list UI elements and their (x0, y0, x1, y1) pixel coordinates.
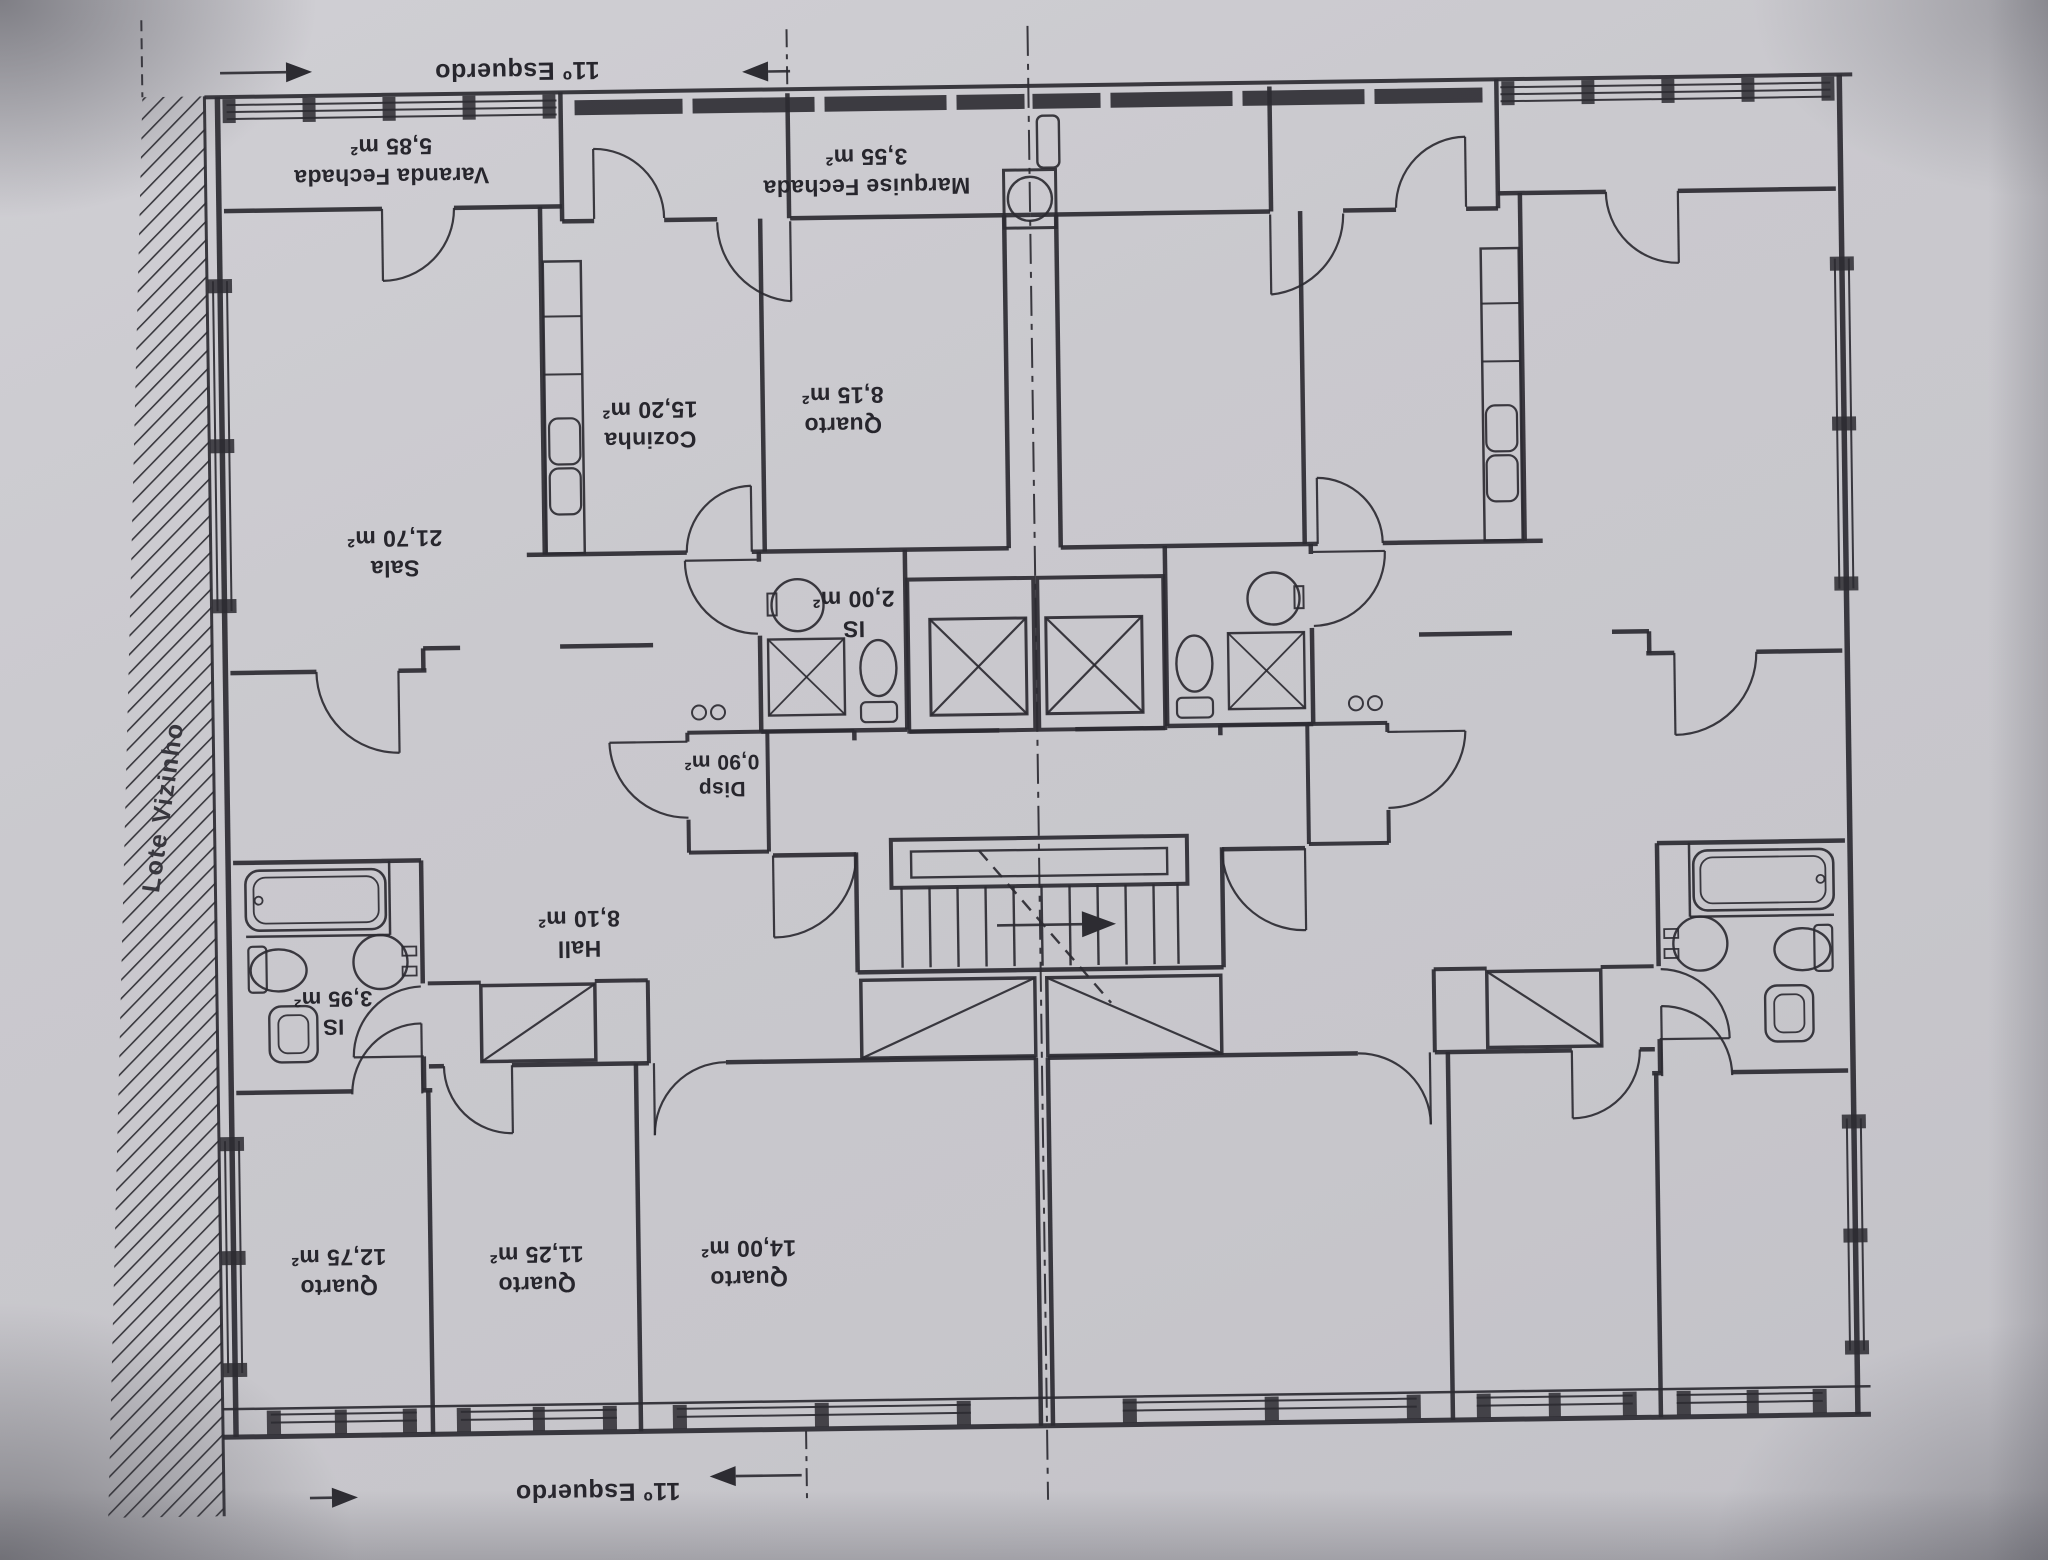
duct-shaft (861, 978, 1036, 1058)
entry-arrow-bottom-left (332, 1487, 358, 1507)
kitchen-counter (543, 261, 585, 554)
svg-text:5,85 m²: 5,85 m² (350, 133, 432, 160)
svg-text:15,20 m²: 15,20 m² (602, 397, 698, 424)
svg-text:8,15 m²: 8,15 m² (801, 382, 883, 409)
svg-text:3,55 m²: 3,55 m² (825, 144, 907, 171)
labels: 11º Esquerdo 11º Esquerdo Lote Vizinho V… (126, 51, 989, 1513)
water-heater (1003, 115, 1061, 228)
entry-arrow-bottom-right (710, 1466, 736, 1486)
svg-text:Marquise Fechada: Marquise Fechada (763, 173, 970, 202)
svg-text:12,75 m²: 12,75 m² (291, 1244, 387, 1271)
entry-arrow-top-left (286, 62, 312, 82)
svg-text:Cozinha: Cozinha (604, 427, 697, 454)
apartment-right-half (1028, 74, 1871, 1425)
wardrobe (481, 984, 596, 1062)
room-label-disp: Disp 0,90 m² (684, 750, 760, 801)
svg-text:Quarto: Quarto (710, 1265, 788, 1292)
svg-text:3,95 m²: 3,95 m² (294, 986, 373, 1012)
svg-text:Disp: Disp (698, 777, 745, 801)
entry-arrow-top-right (742, 62, 768, 82)
room-label-hall: Hall 8,10 m² (538, 906, 621, 963)
unit-label-top: 11º Esquerdo (434, 56, 599, 86)
room-label-quarto-pequeno: Quarto 8,15 m² (801, 382, 884, 439)
svg-text:14,00 m²: 14,00 m² (701, 1235, 797, 1262)
svg-text:8,10 m²: 8,10 m² (538, 906, 620, 933)
door-stops (692, 705, 725, 719)
svg-text:IS: IS (842, 616, 865, 642)
svg-text:IS: IS (322, 1015, 344, 1040)
svg-text:Quarto: Quarto (498, 1271, 576, 1298)
svg-text:0,90 m²: 0,90 m² (684, 750, 760, 774)
svg-text:Quarto: Quarto (300, 1274, 378, 1301)
room-label-quarto-3: Quarto 14,00 m² (701, 1235, 797, 1292)
scanned-floor-plan: 11º Esquerdo 11º Esquerdo Lote Vizinho V… (0, 0, 2048, 1560)
windows (205, 88, 1043, 1435)
svg-text:21,70 m²: 21,70 m² (347, 525, 443, 552)
elevator-shaft (907, 578, 1035, 732)
room-label-varanda: Varanda Fechada 5,85 m² (293, 132, 489, 191)
room-label-is-servico: IS 2,00 m² (812, 586, 895, 643)
stair-direction-line (997, 924, 1082, 925)
room-label-quarto-1: Quarto 12,75 m² (291, 1244, 387, 1301)
svg-text:11,25 m²: 11,25 m² (489, 1241, 583, 1268)
svg-text:Varanda Fechada: Varanda Fechada (294, 162, 490, 191)
unit-label-bottom: 11º Esquerdo (515, 1477, 680, 1507)
apartment-left-half (204, 86, 1047, 1437)
svg-text:Hall: Hall (557, 936, 601, 963)
walls (204, 86, 1047, 1437)
room-label-quarto-2: Quarto 11,25 m² (489, 1241, 584, 1298)
room-label-cozinha: Cozinha 15,20 m² (602, 397, 698, 454)
svg-text:Quarto: Quarto (804, 412, 882, 439)
svg-text:Sala: Sala (370, 555, 419, 582)
room-label-marquise: Marquise Fechada 3,55 m² (763, 143, 971, 202)
svg-text:2,00 m²: 2,00 m² (812, 586, 894, 613)
floor-plan-drawing: 11º Esquerdo 11º Esquerdo Lote Vizinho V… (0, 0, 2048, 1560)
room-label-sala: Sala 21,70 m² (347, 525, 443, 582)
room-label-is-principal: IS 3,95 m² (294, 986, 373, 1040)
